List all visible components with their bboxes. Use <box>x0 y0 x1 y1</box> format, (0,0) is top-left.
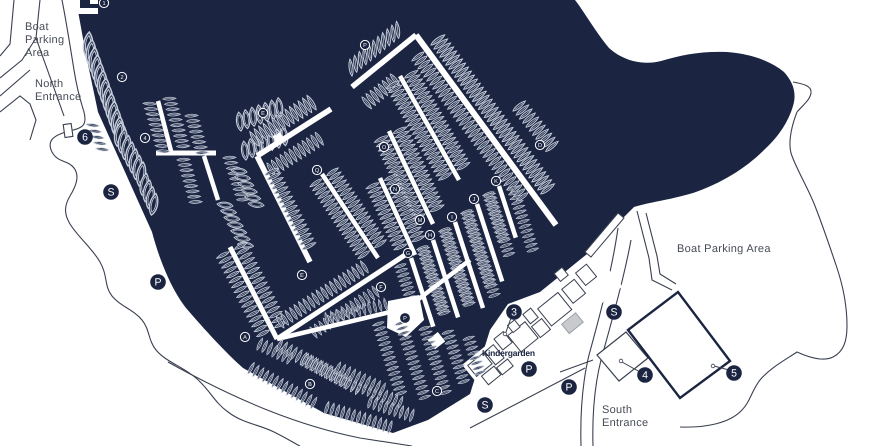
svg-text:C: C <box>435 389 439 395</box>
svg-text:2: 2 <box>120 75 123 81</box>
svg-text:Q: Q <box>315 168 320 174</box>
svg-text:P: P <box>363 43 367 49</box>
svg-text:B: B <box>308 382 312 388</box>
svg-text:North: North <box>35 78 63 90</box>
svg-text:P: P <box>154 277 161 289</box>
svg-text:J: J <box>473 197 476 203</box>
svg-text:N: N <box>393 187 397 193</box>
svg-text:A: A <box>243 335 247 341</box>
svg-text:S: S <box>610 307 617 319</box>
svg-text:6: 6 <box>82 132 88 144</box>
svg-text:P: P <box>565 382 572 394</box>
svg-text:4: 4 <box>143 136 146 142</box>
svg-text:F: F <box>379 285 383 291</box>
svg-text:Boat: Boat <box>25 21 49 33</box>
svg-text:G: G <box>406 251 410 257</box>
svg-text:K: K <box>494 179 498 185</box>
svg-text:5: 5 <box>731 368 737 380</box>
svg-text:D: D <box>538 143 542 149</box>
svg-text:O: O <box>382 145 387 151</box>
svg-text:P: P <box>403 316 407 322</box>
svg-text:Boat Parking Area: Boat Parking Area <box>677 243 771 255</box>
svg-text:Entrance: Entrance <box>602 417 648 429</box>
svg-text:S: S <box>107 187 114 199</box>
svg-text:E: E <box>261 111 265 117</box>
svg-text:South: South <box>602 404 632 416</box>
svg-text:Parking: Parking <box>25 34 64 46</box>
svg-text:1: 1 <box>102 1 105 7</box>
svg-text:E: E <box>300 273 304 279</box>
svg-text:Entrance: Entrance <box>35 91 81 103</box>
svg-text:S: S <box>481 400 488 412</box>
svg-text:3: 3 <box>511 307 517 319</box>
svg-text:Kindergarden: Kindergarden <box>482 348 535 358</box>
svg-text:Area: Area <box>25 47 50 59</box>
svg-text:4: 4 <box>642 370 648 382</box>
svg-text:M: M <box>418 218 423 224</box>
svg-text:H: H <box>428 233 432 239</box>
svg-text:P: P <box>525 364 532 376</box>
